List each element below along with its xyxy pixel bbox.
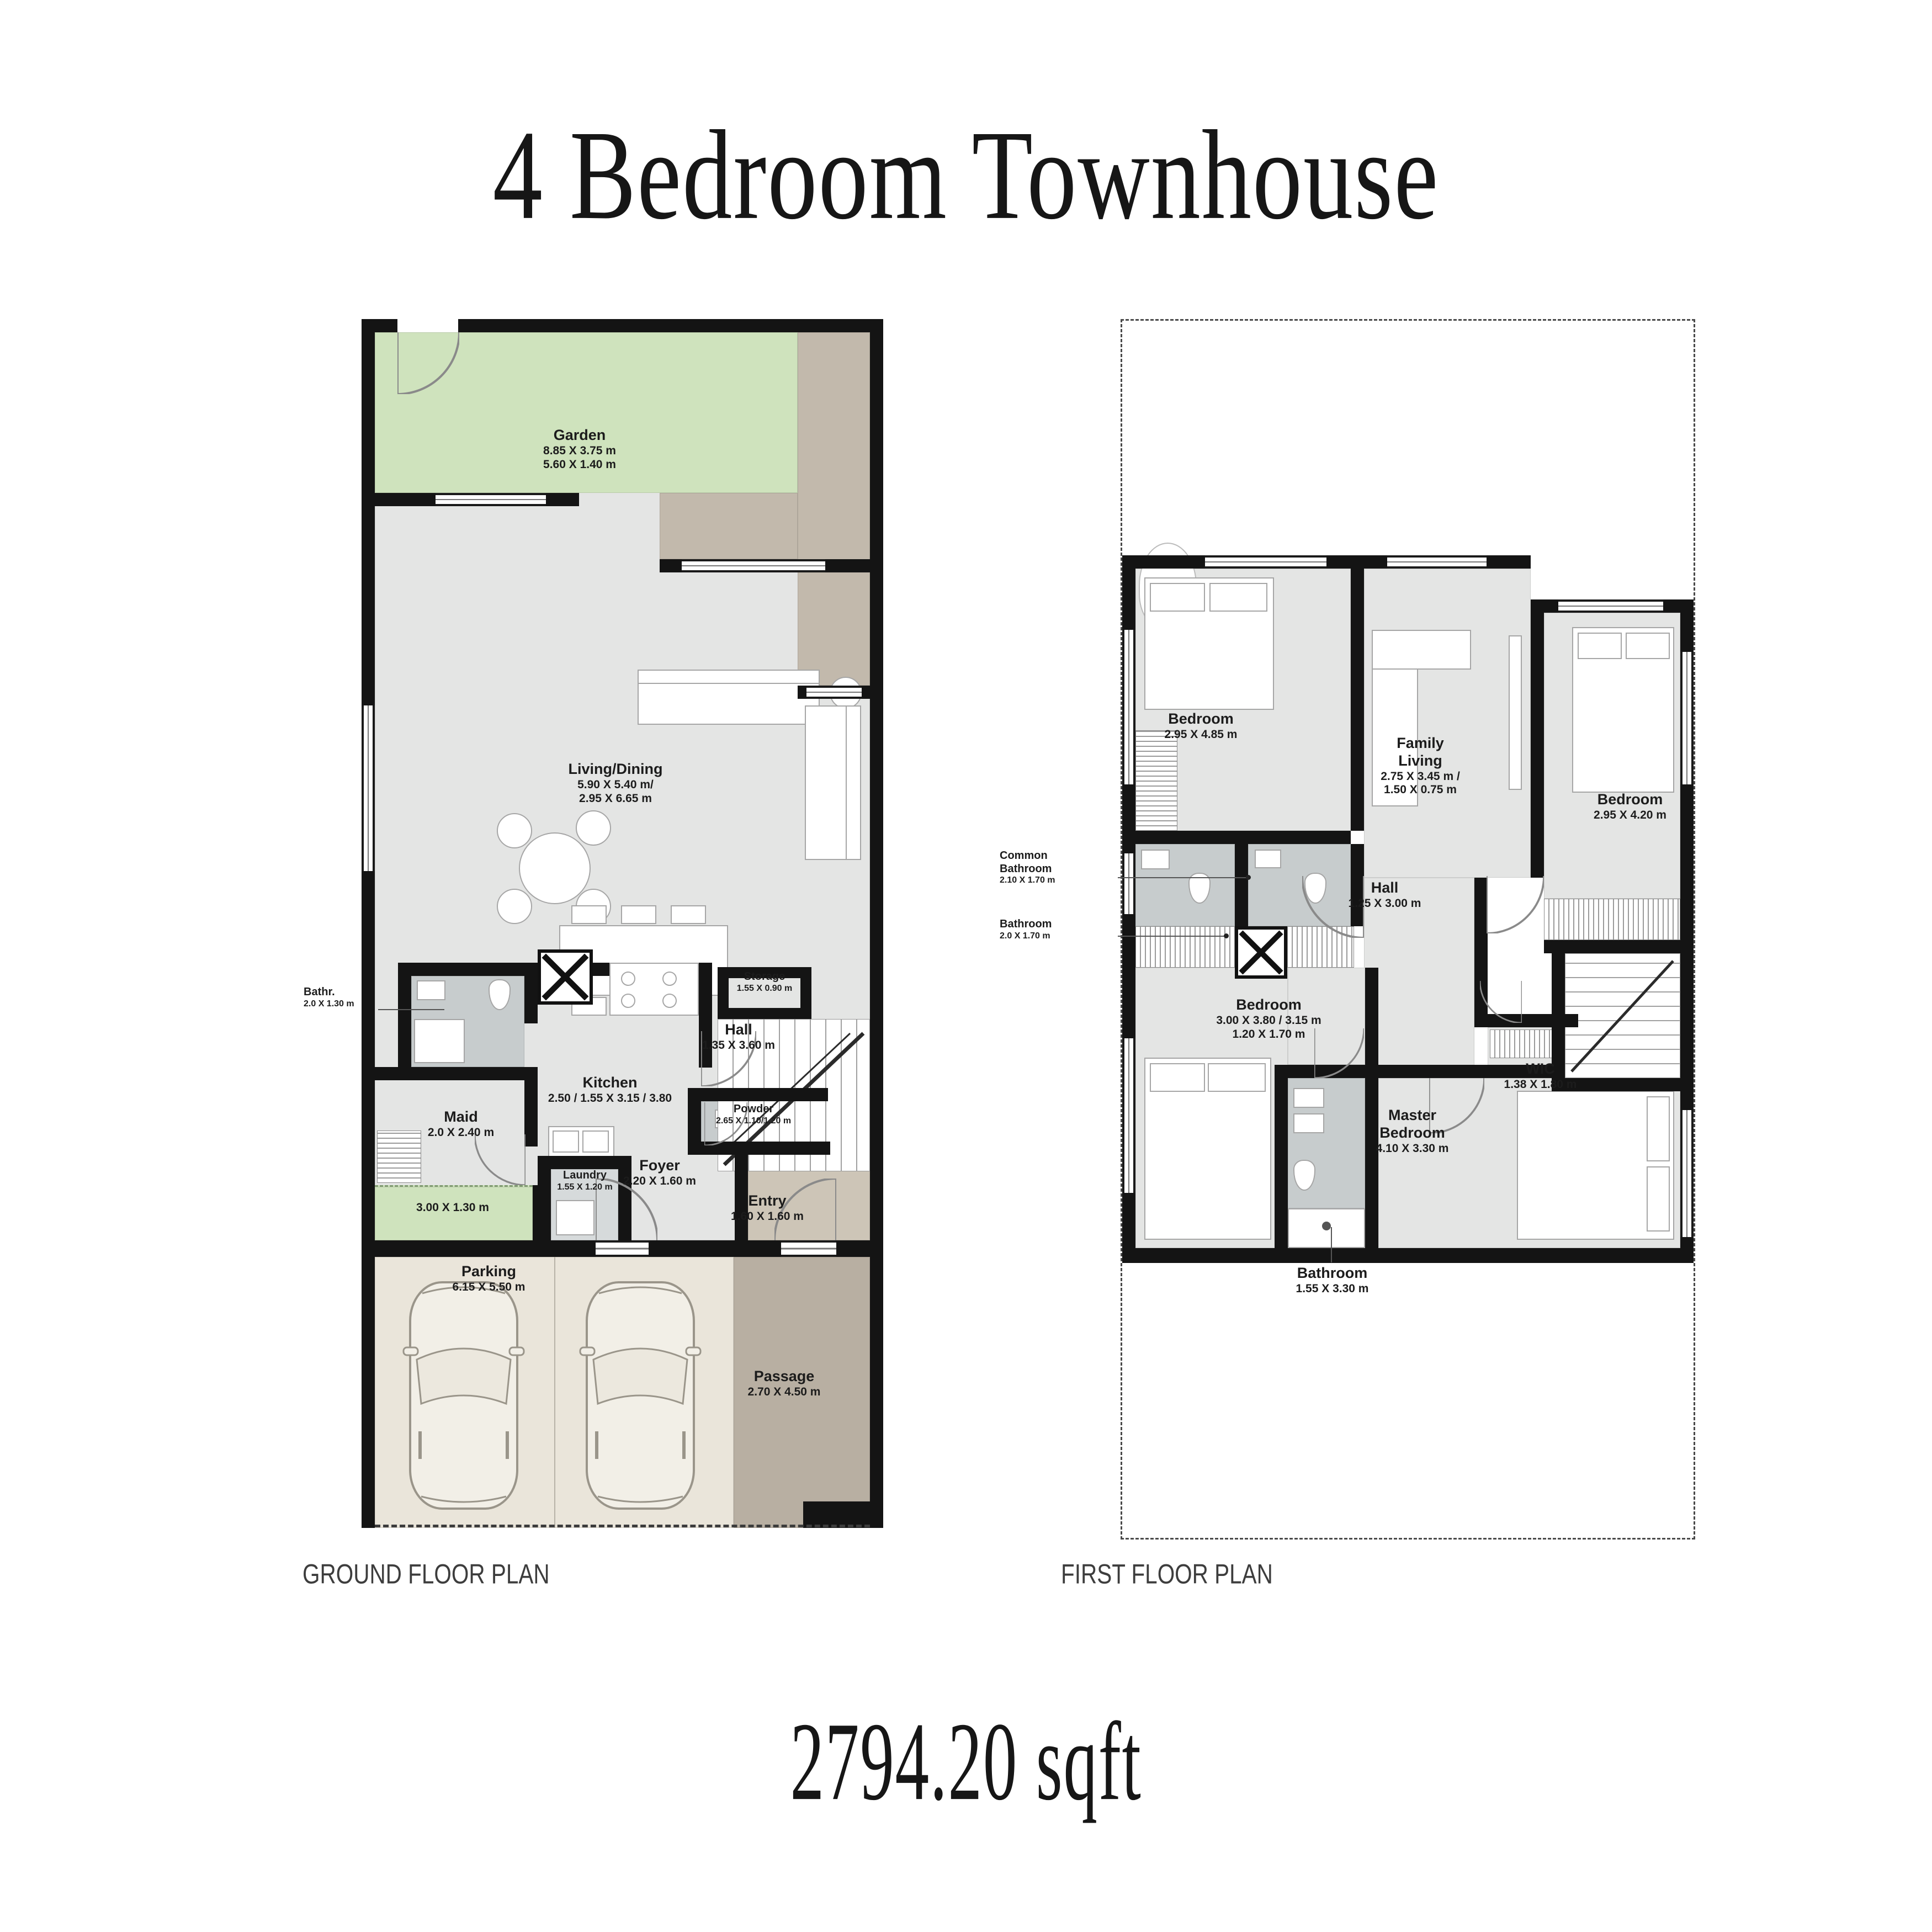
ground-floor-plan: Garden 8.85 X 3.75 m 5.60 X 1.40 m Livin…: [362, 319, 883, 1536]
door-arc: [475, 1134, 526, 1185]
door-arc: [397, 332, 459, 394]
wall: [660, 559, 682, 572]
room-label-storage: Storage 1.55 X 0.90 m: [720, 970, 809, 994]
wall: [375, 493, 436, 506]
first-floor-plan: Bedroom 2.95 X 4.85 m Family Living 2.75…: [1121, 319, 1695, 1540]
room-label-bedroom-2: Bedroom 2.95 X 4.20 m: [1564, 791, 1696, 822]
room-label-laundry: Laundry 1.55 X 1.20 m: [539, 1169, 630, 1192]
window: [1122, 1038, 1135, 1193]
wall: [1552, 953, 1565, 1078]
wall: [1275, 1078, 1288, 1248]
chair: [571, 905, 607, 924]
room-label-maid: Maid 2.0 X 2.40 m: [403, 1108, 519, 1140]
page-title: 4 Bedroom Townhouse: [49, 102, 1884, 249]
wall: [398, 963, 538, 976]
chair: [671, 905, 706, 924]
window: [1122, 630, 1135, 784]
window: [1680, 1110, 1694, 1237]
shaft-symbol: [1235, 926, 1287, 979]
room-label-powder: Powder 2.65 X 1.10/1.20 m: [696, 1103, 811, 1126]
room-label-entry: Entry 1.60 X 1.60 m: [712, 1192, 822, 1224]
window: [1387, 555, 1487, 569]
sink-bowl: [553, 1130, 579, 1153]
sink: [1293, 1088, 1324, 1108]
pillow: [1150, 1063, 1205, 1092]
first-floor-caption: FIRST FLOOR PLAN: [1061, 1558, 1273, 1590]
window: [436, 493, 546, 506]
room-label-common-bathroom: Common Bathroom 2.10 X 1.70 m: [1000, 850, 1118, 886]
chair: [621, 905, 656, 924]
wall: [362, 319, 375, 1528]
room-label-parking: Parking 6.15 X 5.50 m: [427, 1263, 551, 1294]
leader-line: [1118, 936, 1228, 937]
room-label-wic: WIC 1.38 X 1.80 m: [1484, 1060, 1597, 1092]
door-threshold: [781, 1240, 836, 1257]
chair: [497, 813, 532, 848]
wall: [803, 1501, 870, 1528]
sofa-back: [846, 705, 861, 860]
wall: [533, 1185, 546, 1240]
shaft-symbol: [538, 949, 593, 1005]
wall: [362, 319, 397, 332]
wall: [375, 1067, 538, 1080]
burner: [621, 972, 635, 986]
ground-floor-caption: GROUND FLOOR PLAN: [302, 1558, 550, 1590]
room-label-kitchen: Kitchen 2.50 / 1.55 X 3.15 / 3.80: [527, 1074, 693, 1106]
pillow: [1209, 583, 1267, 612]
window: [806, 686, 862, 699]
wardrobe: [1544, 899, 1680, 940]
wall: [1351, 555, 1364, 831]
wall: [1135, 831, 1351, 844]
wall: [375, 1240, 596, 1257]
pillow: [1647, 1096, 1670, 1161]
window: [362, 705, 375, 871]
room-label-bedroom-1: Bedroom 2.95 X 4.85 m: [1130, 710, 1271, 742]
room-label-side-yard: 3.00 X 1.30 m: [384, 1201, 522, 1215]
car-top-view: [400, 1277, 527, 1514]
room-label-bathr: Bathr. 2.0 X 1.30 m: [304, 986, 378, 1009]
leader-line: [1331, 1227, 1332, 1262]
wall: [649, 1240, 748, 1257]
wardrobe: [1135, 926, 1235, 968]
window: [682, 559, 825, 572]
wall: [524, 963, 538, 1023]
wall: [688, 1088, 828, 1101]
chair: [497, 889, 532, 924]
wall: [458, 319, 883, 332]
washer: [556, 1200, 595, 1235]
wall: [748, 1240, 781, 1257]
bathtub: [414, 1019, 465, 1063]
room-label-garden: Garden 8.85 X 3.75 m 5.60 X 1.40 m: [489, 427, 671, 471]
leader-line: [1118, 877, 1250, 878]
wall: [1365, 968, 1378, 1065]
window: [1205, 555, 1326, 569]
window: [1680, 652, 1694, 784]
stove: [609, 963, 699, 1016]
burner: [662, 994, 677, 1008]
wall: [836, 1240, 870, 1257]
door-threshold: [596, 1240, 649, 1257]
pillow: [1647, 1166, 1670, 1232]
door-arc: [1487, 876, 1544, 933]
sink-bowl: [582, 1130, 609, 1153]
room-label-passage: Passage 2.70 X 4.50 m: [730, 1368, 838, 1399]
pillow: [1150, 583, 1205, 612]
room-label-living-dining: Living/Dining 5.90 X 5.40 m/ 2.95 X 6.65…: [541, 761, 690, 805]
room-label-hall: Hall 1.25 X 3.00 m: [1336, 879, 1433, 911]
wall: [546, 493, 579, 506]
pillow: [1208, 1063, 1266, 1092]
tv-unit: [1509, 635, 1522, 790]
round-table: [519, 832, 591, 904]
chair: [576, 810, 611, 846]
leader-line: [378, 1009, 444, 1010]
sofa-back: [638, 670, 820, 684]
pillow: [1578, 633, 1622, 659]
room-label-family-living: Family Living 2.75 X 3.45 m / 1.50 X 0.7…: [1368, 735, 1473, 797]
room-label-bedroom-3: Bedroom 3.00 X 3.80 / 3.15 m 1.20 X 1.70…: [1187, 996, 1350, 1041]
plot-boundary-dashed: [375, 1525, 870, 1527]
sink: [1293, 1113, 1324, 1133]
wall: [870, 319, 883, 1528]
wall: [1531, 613, 1544, 878]
stair-rail: [1565, 953, 1680, 1078]
room-label-bathroom-1: Bathroom 2.0 X 1.70 m: [1000, 918, 1118, 941]
leader-dot: [1246, 875, 1251, 880]
door-arc: [1480, 981, 1522, 1023]
terrace-area: [798, 332, 870, 686]
sink: [1141, 850, 1170, 869]
sink: [1255, 850, 1281, 868]
room-label-hall: Hall 1.35 X 3.60 m: [692, 1021, 785, 1053]
pillow: [1626, 633, 1670, 659]
sink: [417, 980, 445, 1000]
car-top-view: [577, 1277, 704, 1514]
shower-drain: [1322, 1222, 1331, 1230]
wall: [593, 963, 609, 976]
wall: [825, 559, 870, 572]
room-label-master-bedroom: Master Bedroom 4.10 X 3.30 m: [1347, 1107, 1477, 1155]
wall: [398, 963, 411, 1080]
room-label-bathroom-2: Bathroom 1.55 X 3.30 m: [1276, 1265, 1389, 1296]
wall: [1235, 844, 1248, 926]
wall: [1122, 1248, 1694, 1263]
wardrobe: [1135, 730, 1177, 831]
burner: [621, 994, 635, 1008]
wall: [1365, 1078, 1378, 1248]
leader-dot: [1224, 933, 1229, 938]
parking-divider-line: [554, 1257, 555, 1528]
sofa: [1372, 630, 1471, 670]
terrace-area: [660, 493, 798, 559]
total-area: 2794.20 sqft: [116, 1697, 1816, 1826]
window: [1558, 599, 1663, 613]
window: [1122, 853, 1135, 914]
wall: [1544, 940, 1680, 953]
burner: [662, 972, 677, 986]
